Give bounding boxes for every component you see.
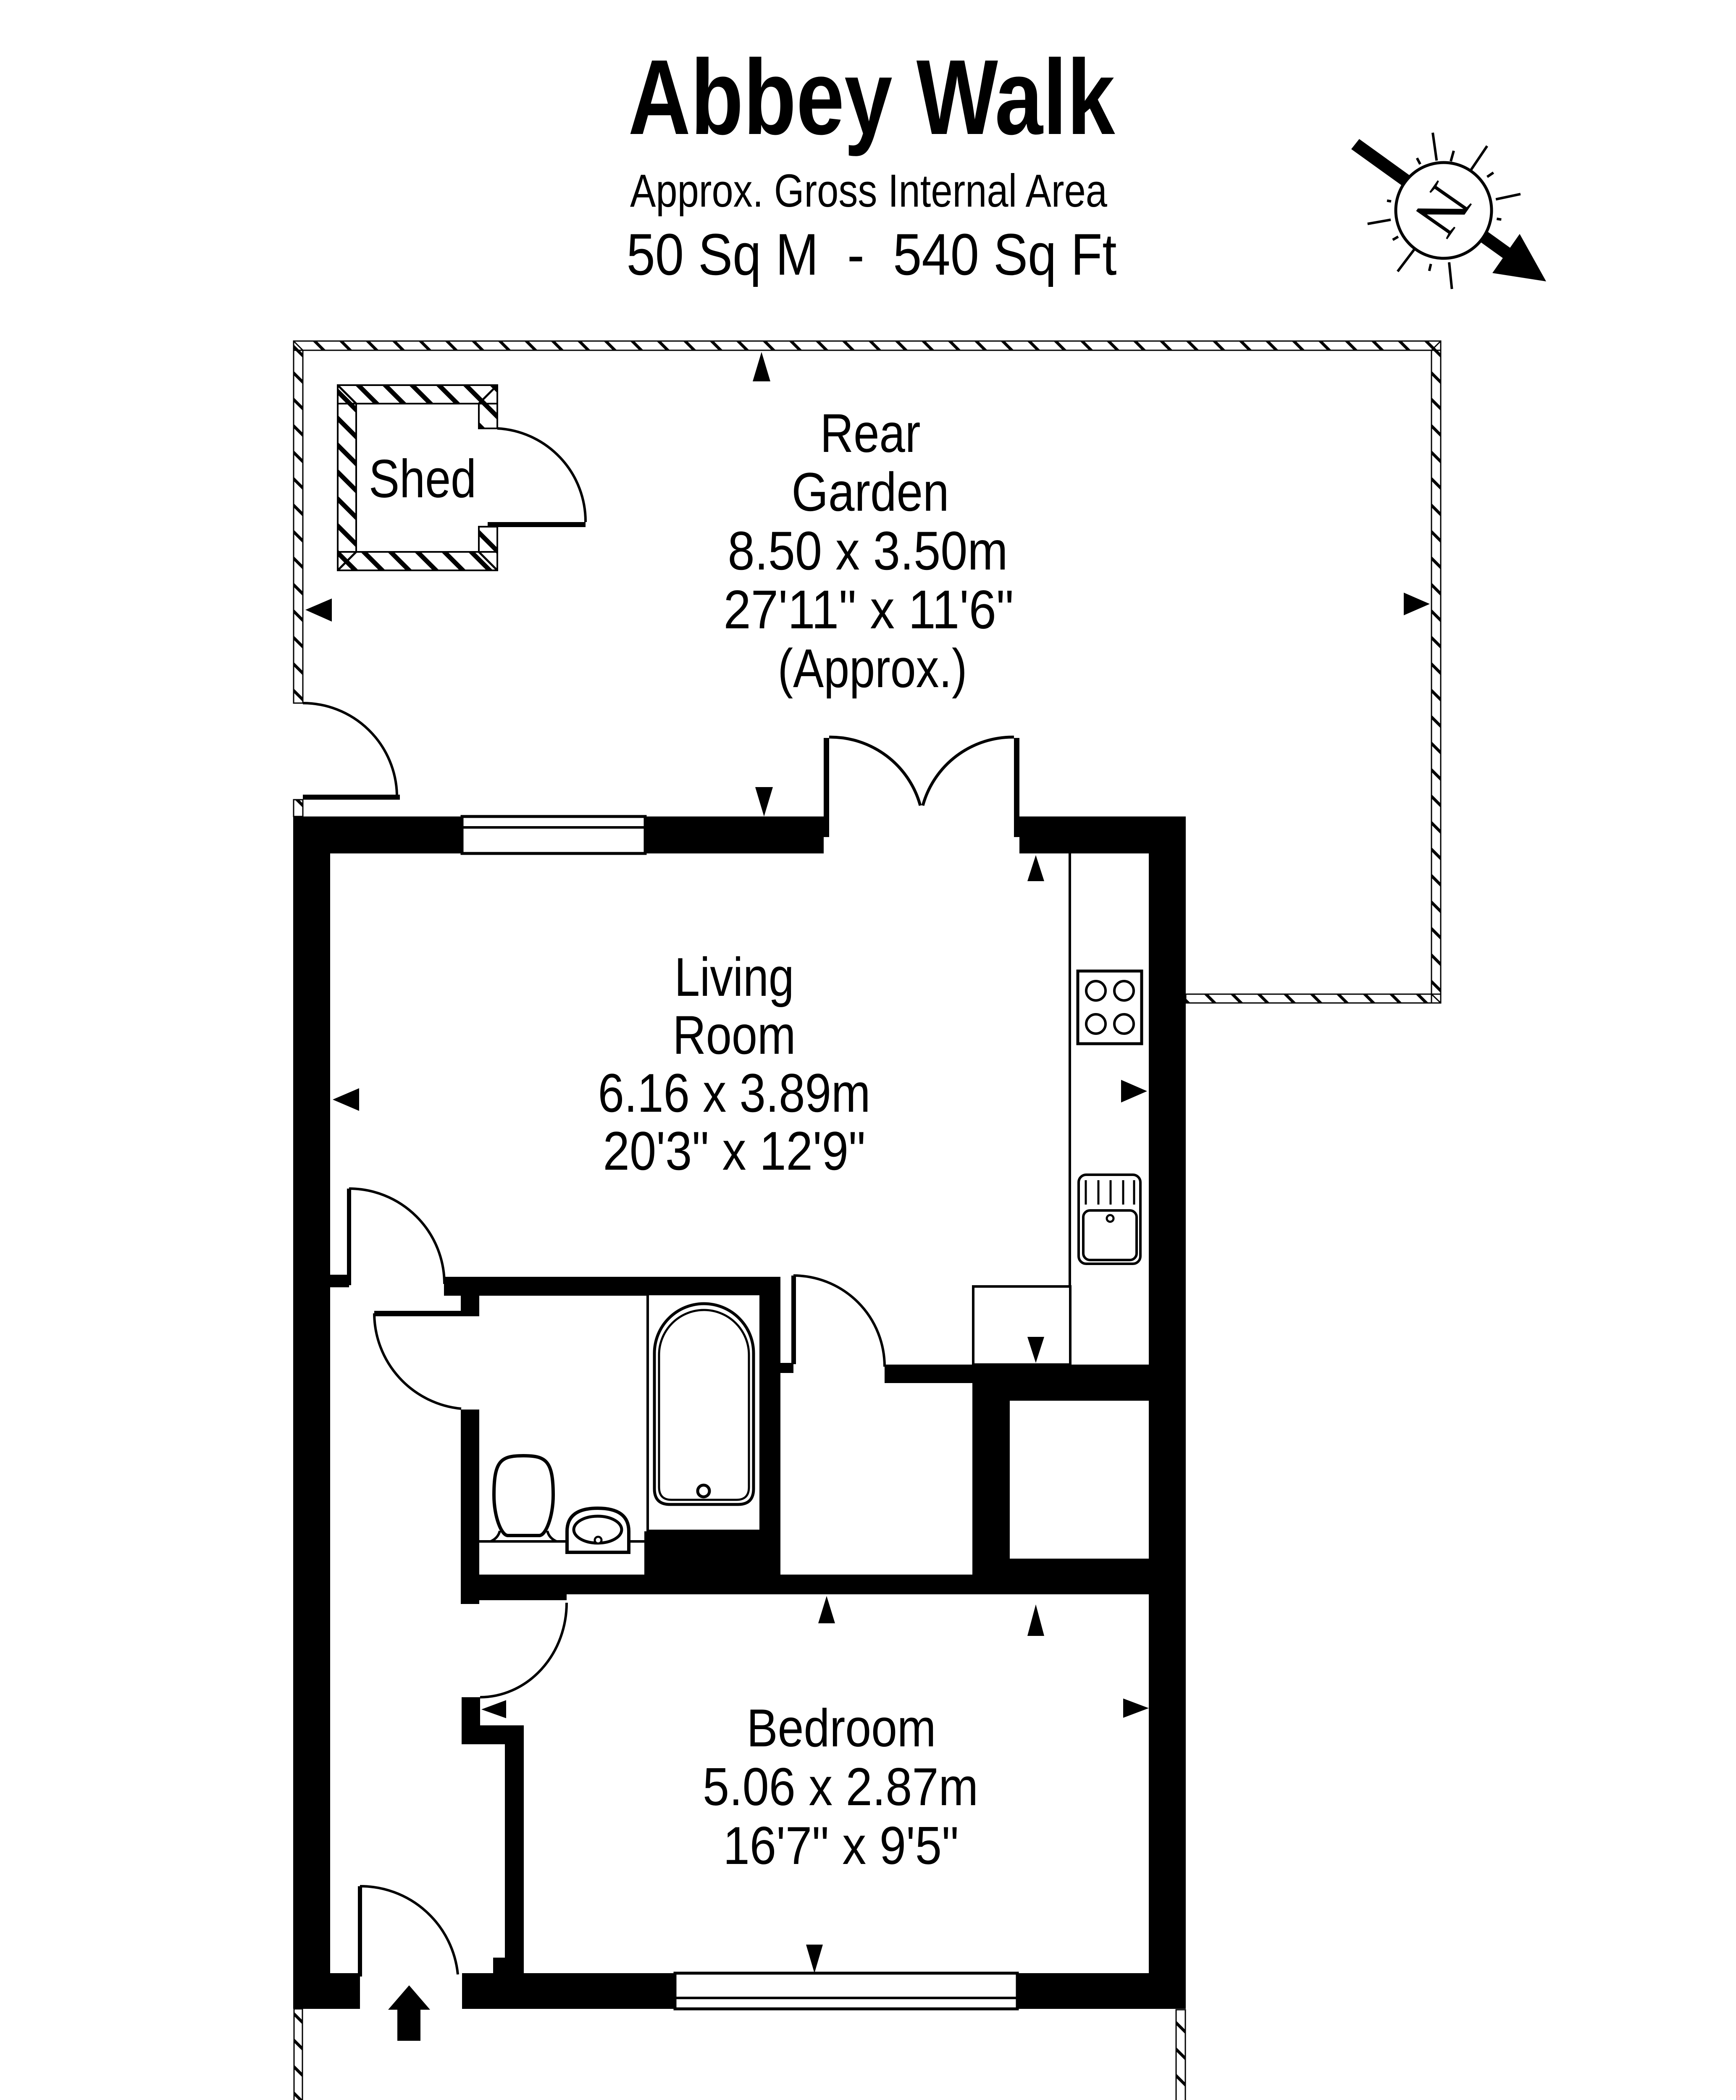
svg-text:Living: Living (675, 946, 794, 1008)
svg-text:6.16 x 3.89m: 6.16 x 3.89m (598, 1062, 871, 1123)
svg-text:Approx. Gross Internal Area: Approx. Gross Internal Area (630, 165, 1108, 217)
svg-text:16'7" x 9'5": 16'7" x 9'5" (723, 1816, 959, 1875)
svg-text:Bedroom: Bedroom (747, 1698, 936, 1758)
svg-text:20'3" x 12'9": 20'3" x 12'9" (603, 1120, 866, 1181)
svg-text:27'11" x 11'6": 27'11" x 11'6" (724, 579, 1014, 640)
svg-text:(Approx.): (Approx.) (778, 638, 967, 699)
svg-text:Abbey Walk: Abbey Walk (628, 37, 1116, 157)
svg-text:8.50 x 3.50m: 8.50 x 3.50m (728, 520, 1008, 581)
svg-text:5.06 x 2.87m: 5.06 x 2.87m (703, 1757, 978, 1816)
svg-text:Room: Room (673, 1004, 796, 1066)
svg-text:Shed: Shed (369, 449, 476, 509)
svg-text:50 Sq M - 540 Sq Ft: 50 Sq M - 540 Sq Ft (627, 221, 1117, 287)
svg-text:Rear: Rear (820, 402, 921, 464)
svg-text:Garden: Garden (792, 461, 949, 522)
